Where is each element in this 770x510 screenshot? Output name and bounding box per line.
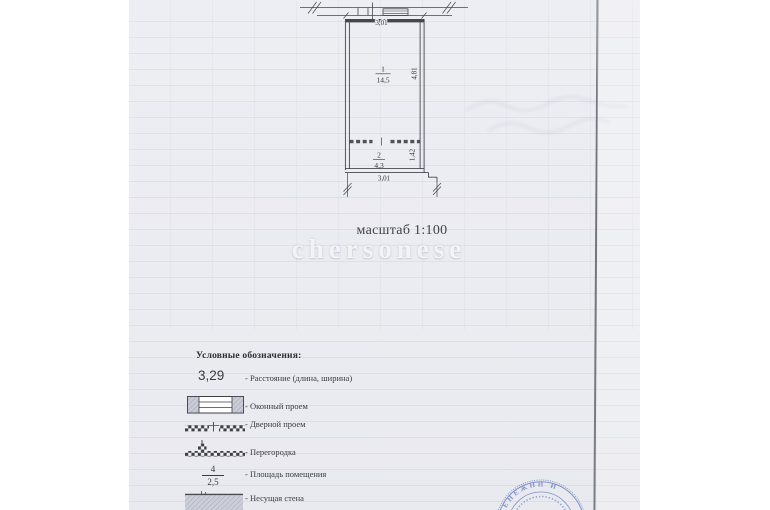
legend-title: Условные обозначения: <box>196 351 301 361</box>
left-wall <box>345 19 349 170</box>
area-example-number: 4 <box>211 464 216 474</box>
upper-wall-band <box>300 2 468 20</box>
room1-area: 14,5 <box>376 76 389 85</box>
window-opening-symbol <box>187 396 245 414</box>
room-area-symbol: 4 2,5 <box>199 464 227 487</box>
partition-symbol <box>185 440 245 458</box>
legend-item-distance: - Расстояние (длина, ширина) <box>245 373 352 383</box>
legend-item-window: - Оконный проем <box>245 401 308 411</box>
dimension-label-height-main: 4,81 <box>411 67 419 80</box>
legend-item-area: - Площадь помещения <box>245 469 326 479</box>
dimension-label-height-second: 1,42 <box>409 148 417 161</box>
legend-item-partition: - Перегородка <box>245 447 296 457</box>
lower-break-marks <box>344 183 442 195</box>
stamp-arc-text: ЕНЕЖНИ И <box>501 480 559 509</box>
room2-area: 4,3 <box>374 161 384 170</box>
door-opening-symbol <box>185 422 245 434</box>
scanned-page: 3,01 1 14,5 4,81 2 4,3 1,42 3,01 масштаб… <box>129 0 640 510</box>
area-example-value: 2,5 <box>207 477 218 487</box>
dimension-label-bottom: 3,01 <box>378 175 391 183</box>
room2-number: 2 <box>377 151 381 160</box>
dimension-label-top: 3,01 <box>375 19 388 27</box>
right-wall <box>420 19 424 173</box>
watermark: chersonese <box>264 234 494 265</box>
lower-break-verticals <box>348 173 438 197</box>
bottom-wall <box>345 169 437 182</box>
window-symbol-on-plan <box>383 9 408 16</box>
legend-item-door: - Дверной проем <box>245 419 306 429</box>
round-stamp: ЕНЕЖНИ И <box>494 477 590 510</box>
svg-text:ЕНЕЖНИ И: ЕНЕЖНИ И <box>501 480 559 509</box>
bearing-wall-symbol <box>185 491 243 510</box>
fraction-bars <box>373 74 391 160</box>
floor-plan-drawing: 3,01 1 14,5 4,81 2 4,3 1,42 3,01 <box>295 0 475 205</box>
fraction-bar <box>202 475 224 476</box>
page-margin-strip <box>597 0 640 510</box>
legend-item-bearing-wall: - Несущая стена <box>245 493 304 503</box>
room1-number: 1 <box>381 65 385 74</box>
distance-example-value: 3,29 <box>198 368 224 383</box>
door-jamb-ticks <box>358 8 368 16</box>
